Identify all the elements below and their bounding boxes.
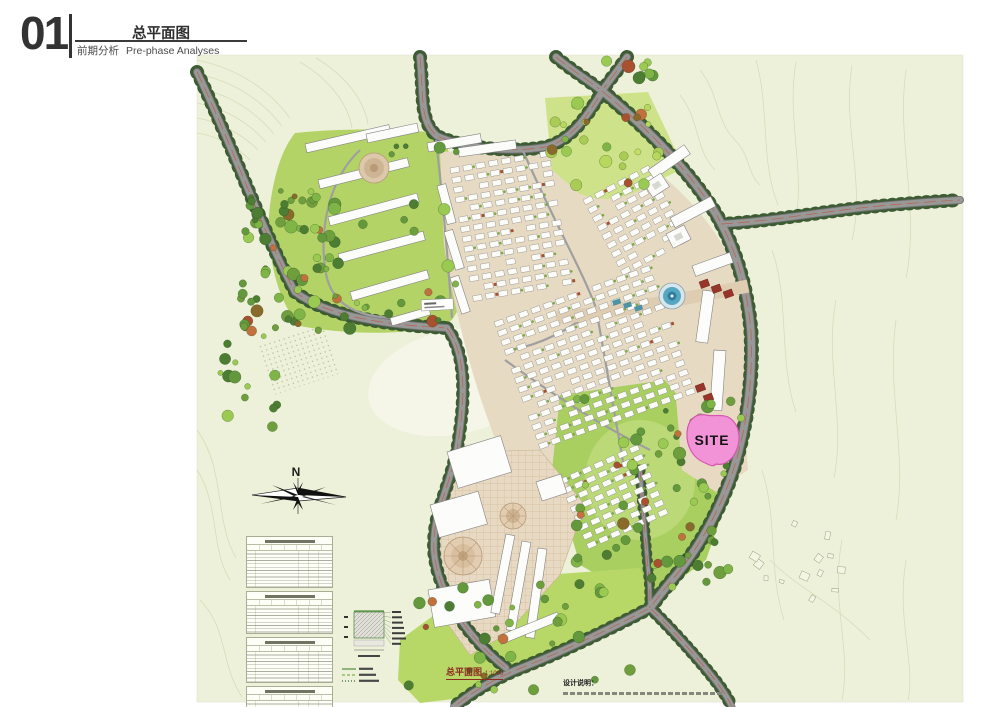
compass-north-label: N [292,465,301,479]
title-underline [75,40,247,43]
subtitle-en: Pre-phase Analyses [126,45,219,57]
drawing-caption: 总平面图1:1000 [446,665,503,680]
subtitle-zh: 前期分析 [77,45,119,57]
design-notes-text [563,692,723,695]
indicator-table [246,686,333,707]
section-number: 01 [20,10,67,56]
design-notes-title: 设计说明： [563,678,598,688]
indicator-table [246,591,333,634]
presentation-page: SITE N 01 总平面图 前期分析Pre-phase Analyses 总平… [0,0,1000,707]
header-divider-bar [69,14,72,58]
caption-title: 总平面图 [446,667,482,677]
indicator-table [246,637,333,683]
indicator-table [246,536,333,588]
site-label: SITE [694,432,729,448]
master-plan-map: SITE N [0,0,1000,707]
caption-scale: 1:1000 [485,671,503,677]
page-subtitle: 前期分析Pre-phase Analyses [77,43,219,58]
